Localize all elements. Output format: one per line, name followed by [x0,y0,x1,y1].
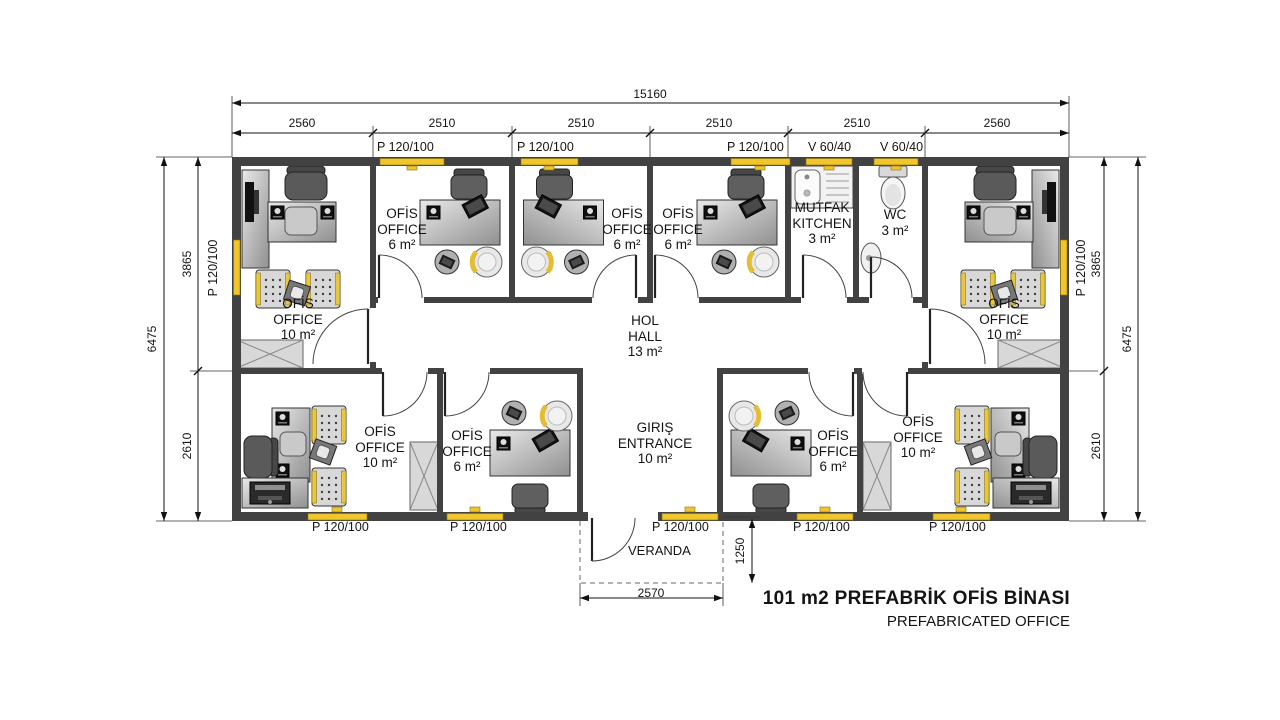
floor-plan-canvas: prefabrik prefabrik prefabrik prefabrik … [0,0,1280,720]
room-label-office-bottomright: OFİS OFFICE 10 m² [893,414,943,461]
room-label-office-6m-3: OFİS OFFICE 6 m² [653,206,703,253]
dim-segment-5: 2510 [844,116,871,130]
window-label-top-3: P 120/100 [727,140,784,154]
veranda-label: VERANDA [628,543,691,558]
dim-left-upper: 3865 [180,251,194,278]
toilet [879,166,907,209]
window-label-top-1: P 120/100 [377,140,434,154]
room-label-wc: WC 3 m² [882,207,909,238]
room-label-office-6m-5: OFİS OFFICE 6 m² [808,428,858,475]
room-label-hall: HOL HALL 13 m² [628,313,663,360]
room-label-entrance: GIRIŞ ENTRANCE 10 m² [618,420,692,467]
window-label-bottom-4: P 120/100 [793,520,850,534]
dim-segment-2: 2510 [429,116,456,130]
room-label-office-topleft: OFİS OFFICE 10 m² [273,296,323,343]
room-label-office-topright: OFİS OFFICE 10 m² [979,296,1029,343]
plan-title: 101 m2 PREFABRİK OFİS BİNASI [763,588,1070,610]
dim-right-upper: 3865 [1089,251,1103,278]
dim-total-width: 15160 [633,87,666,101]
dim-segment-4: 2510 [706,116,733,130]
dim-segment-6: 2560 [984,116,1011,130]
plan-subtitle: PREFABRICATED OFFICE [763,613,1070,630]
room-label-office-bottomleft: OFİS OFFICE 10 m² [355,424,405,471]
window-label-bottom-5: P 120/100 [929,520,986,534]
window-label-bottom-1: P 120/100 [312,520,369,534]
dim-left-overall: 6475 [145,326,159,353]
floor-plan-drawing: prefabrik prefabrik prefabrik prefabrik … [0,0,1280,720]
window-label-left: P 120/100 [206,240,220,297]
room-label-kitchen: MUTFAK KITCHEN 3 m² [792,200,851,247]
title-block: 101 m2 PREFABRİK OFİS BİNASI PREFABRICAT… [763,588,1070,630]
window-label-bottom-2: P 120/100 [450,520,507,534]
window-label-right: P 120/100 [1074,240,1088,297]
window-label-top-2: P 120/100 [517,140,574,154]
dim-veranda-depth: 1250 [733,538,747,565]
room-label-office-6m-4: OFİS OFFICE 6 m² [442,428,492,475]
window-label-bottom-3: P 120/100 [652,520,709,534]
dim-segment-1: 2560 [289,116,316,130]
dim-veranda-width: 2570 [638,586,665,600]
window-label-top-5: V 60/40 [880,140,923,154]
dim-right-lower: 2610 [1089,433,1103,460]
dim-segment-3: 2510 [568,116,595,130]
room-label-office-6m-2: OFİS OFFICE 6 m² [602,206,652,253]
window-label-top-4: V 60/40 [808,140,851,154]
dim-right-overall: 6475 [1120,326,1134,353]
room-label-office-6m-1: OFİS OFFICE 6 m² [377,206,427,253]
dim-left-lower: 2610 [180,433,194,460]
